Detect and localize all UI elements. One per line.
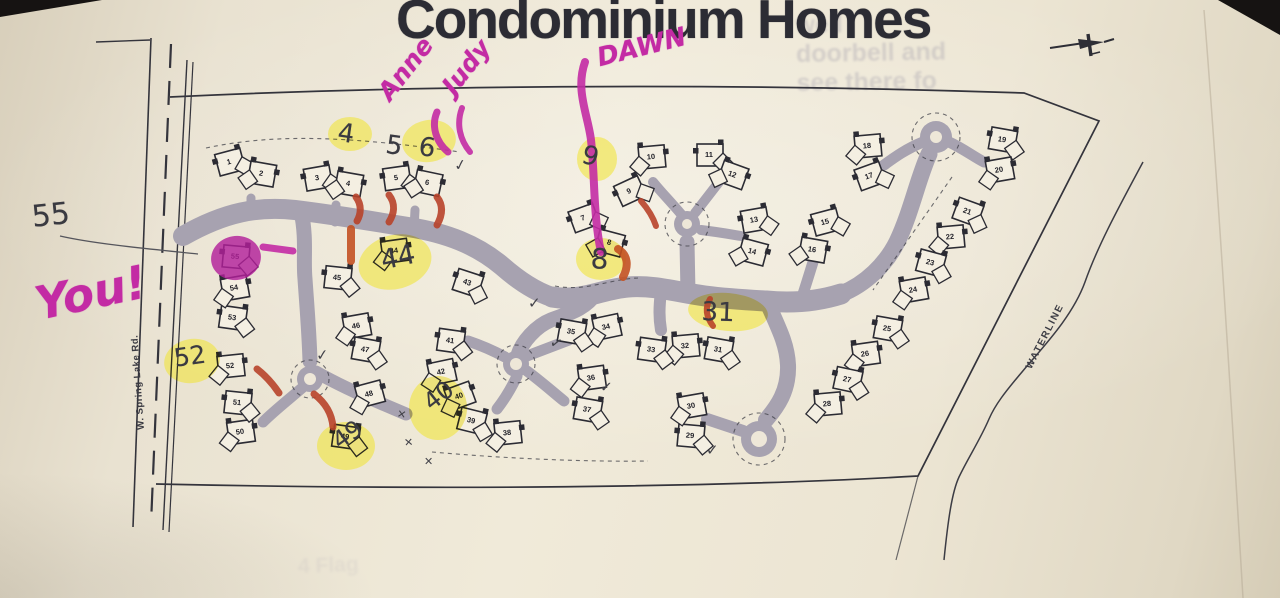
highlighter-mark <box>399 116 459 167</box>
svg-text:22: 22 <box>945 232 954 242</box>
red-marker-mark <box>437 197 442 225</box>
building-45: 45 <box>319 261 362 298</box>
svg-text:25: 25 <box>882 323 892 333</box>
building-24: 24 <box>889 272 934 312</box>
building-10: 10 <box>628 140 671 177</box>
building-53: 53 <box>214 300 258 339</box>
building-43: 43 <box>446 263 494 307</box>
svg-text:37: 37 <box>582 404 592 414</box>
building-31: 31 <box>699 332 744 372</box>
svg-text:26: 26 <box>860 349 870 359</box>
svg-text:33: 33 <box>646 344 656 354</box>
red-marker-mark <box>641 201 656 226</box>
building-37: 37 <box>568 392 613 432</box>
svg-text:41: 41 <box>445 335 455 345</box>
red-marker-mark <box>314 394 333 427</box>
magenta-highlight-unit-55 <box>208 232 265 284</box>
svg-text:16: 16 <box>807 244 817 254</box>
svg-text:32: 32 <box>680 341 689 351</box>
svg-text:35: 35 <box>566 326 576 336</box>
svg-text:29: 29 <box>685 431 694 441</box>
building-9: 9 <box>608 167 658 214</box>
svg-text:19: 19 <box>997 134 1007 144</box>
highlighter-mark <box>317 422 375 470</box>
building-28: 28 <box>804 387 847 424</box>
pink-marker-stroke <box>459 108 470 152</box>
building-22: 22 <box>927 220 970 257</box>
photo-of-site-plan: Condominium Homes well doorbell and see … <box>0 0 1280 598</box>
building-50: 50 <box>216 414 260 453</box>
svg-text:38: 38 <box>502 428 511 438</box>
svg-text:45: 45 <box>332 272 341 282</box>
svg-text:53: 53 <box>227 312 237 322</box>
svg-text:11: 11 <box>705 150 713 159</box>
paper-sheet: Condominium Homes well doorbell and see … <box>0 0 1280 598</box>
svg-text:18: 18 <box>862 141 871 151</box>
building-51: 51 <box>219 386 262 423</box>
svg-text:52: 52 <box>225 361 234 371</box>
site-plan-map: 1234567891011121314151617181920212223242… <box>0 0 1280 598</box>
svg-text:47: 47 <box>360 344 370 354</box>
handdrawn-marks-layer <box>60 62 770 470</box>
building-18: 18 <box>844 129 887 166</box>
red-marker-mark <box>389 195 394 222</box>
highlighter-mark <box>328 117 372 151</box>
svg-text:20: 20 <box>994 165 1004 175</box>
red-marker-mark <box>257 369 279 393</box>
property-boundary <box>156 86 1099 560</box>
building-36: 36 <box>567 360 611 399</box>
pink-marker-stroke <box>263 247 293 251</box>
paper-crease <box>1204 10 1243 598</box>
svg-text:28: 28 <box>822 399 831 409</box>
svg-text:36: 36 <box>586 373 596 383</box>
svg-text:10: 10 <box>646 152 655 162</box>
highlighter-mark <box>409 376 467 440</box>
north-arrow-icon <box>1048 30 1122 60</box>
svg-text:51: 51 <box>232 397 241 407</box>
svg-text:46: 46 <box>351 321 361 331</box>
street-linework <box>96 38 193 532</box>
svg-text:31: 31 <box>713 344 723 354</box>
svg-text:30: 30 <box>686 401 696 411</box>
building-15: 15 <box>806 201 853 244</box>
svg-text:50: 50 <box>235 427 245 437</box>
svg-text:13: 13 <box>749 215 759 225</box>
building-19: 19 <box>983 122 1028 162</box>
